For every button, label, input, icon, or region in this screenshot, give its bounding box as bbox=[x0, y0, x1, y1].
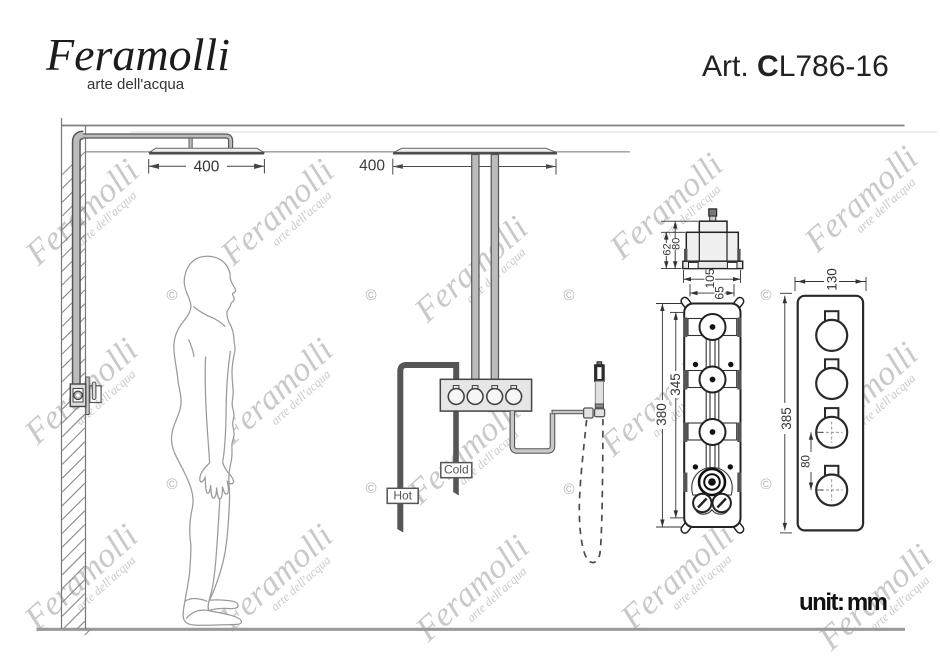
svg-text:arte dell'acqua: arte dell'acqua bbox=[87, 76, 185, 93]
svg-text:385: 385 bbox=[779, 407, 794, 430]
svg-text:©: © bbox=[365, 480, 376, 497]
svg-text:©: © bbox=[365, 287, 376, 304]
svg-text:400: 400 bbox=[194, 159, 220, 176]
svg-text:400: 400 bbox=[359, 158, 385, 175]
svg-text:©: © bbox=[563, 287, 574, 304]
svg-text:80: 80 bbox=[671, 238, 683, 250]
svg-text:©: © bbox=[563, 481, 574, 498]
svg-text:Hot: Hot bbox=[393, 488, 412, 502]
svg-text:105: 105 bbox=[703, 268, 717, 288]
svg-text:©: © bbox=[166, 476, 177, 493]
svg-text:380: 380 bbox=[654, 403, 669, 426]
svg-text:©: © bbox=[760, 287, 771, 304]
svg-text:©: © bbox=[760, 476, 771, 493]
svg-text:Art. CL786-16: Art. CL786-16 bbox=[702, 50, 889, 83]
svg-text:345: 345 bbox=[668, 373, 683, 396]
svg-text:Feramolli: Feramolli bbox=[45, 29, 230, 80]
svg-text:65: 65 bbox=[712, 286, 726, 300]
svg-text:unit: mm: unit: mm bbox=[799, 589, 888, 616]
svg-text:130: 130 bbox=[825, 268, 840, 291]
svg-text:80: 80 bbox=[801, 455, 813, 468]
svg-text:Cold: Cold bbox=[444, 463, 469, 477]
svg-text:©: © bbox=[166, 287, 177, 304]
